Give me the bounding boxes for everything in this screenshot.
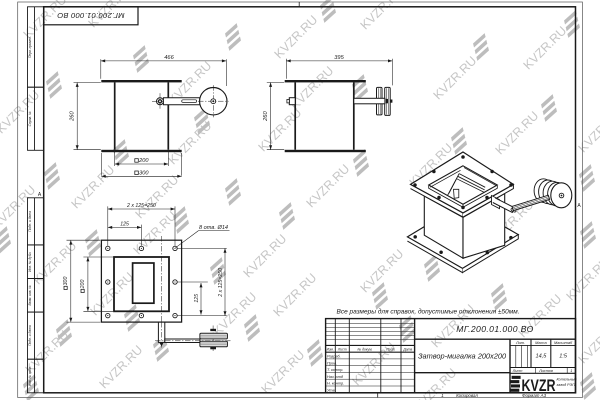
svg-text:Инв. № подл.: Инв. № подл. bbox=[28, 366, 32, 387]
svg-text:Н. контр.: Н. контр. bbox=[327, 382, 344, 386]
svg-text:Т. контр.: Т. контр. bbox=[327, 368, 343, 372]
svg-text:Разраб.: Разраб. bbox=[327, 355, 341, 359]
svg-text:Перв. примен.: Перв. примен. bbox=[28, 36, 32, 58]
svg-text:№ докум.: № докум. bbox=[358, 348, 373, 352]
svg-text:300: 300 bbox=[63, 277, 69, 286]
svg-text:125: 125 bbox=[194, 294, 200, 303]
svg-text:260: 260 bbox=[263, 111, 269, 122]
svg-text:Масштаб: Масштаб bbox=[554, 340, 573, 345]
svg-text:Лист: Лист bbox=[337, 348, 347, 352]
svg-text:300: 300 bbox=[139, 171, 149, 177]
svg-text:МГ.200.01.000 ВО: МГ.200.01.000 ВО bbox=[456, 324, 533, 334]
svg-text:Лит.: Лит. bbox=[515, 340, 525, 345]
svg-text:200: 200 bbox=[138, 158, 149, 164]
svg-text:Дата: Дата bbox=[402, 348, 412, 352]
svg-text:Изм.: Изм. bbox=[327, 348, 334, 352]
svg-text:Масса: Масса bbox=[535, 340, 547, 345]
svg-text:Инв. № дубл.: Инв. № дубл. bbox=[28, 251, 32, 271]
svg-text:завод РЭП: завод РЭП bbox=[556, 383, 576, 387]
svg-text:Утв.: Утв. bbox=[327, 388, 336, 392]
svg-text:Лист: Лист bbox=[512, 369, 523, 373]
svg-text:Взам. инв. №: Взам. инв. № bbox=[28, 285, 32, 306]
svg-text:Подп. и дата: Подп. и дата bbox=[28, 211, 32, 232]
svg-text:395: 395 bbox=[334, 55, 344, 61]
svg-text:1: 1 bbox=[570, 369, 572, 373]
svg-text:Листов: Листов bbox=[538, 369, 553, 373]
svg-text:Копировал: Копировал bbox=[456, 393, 478, 398]
svg-text:Затвор-мигалка 200х200: Затвор-мигалка 200х200 bbox=[418, 352, 507, 361]
svg-text:Справ. №: Справ. № bbox=[28, 111, 32, 126]
svg-text:Котельный: Котельный bbox=[557, 378, 577, 382]
svg-text:2 x 125=250: 2 x 125=250 bbox=[218, 268, 224, 298]
svg-text:Подп. и дата: Подп. и дата bbox=[28, 325, 32, 346]
svg-text:1:5: 1:5 bbox=[559, 354, 568, 360]
svg-text:Пров.: Пров. bbox=[327, 361, 337, 365]
svg-text:Подп.: Подп. bbox=[386, 348, 395, 352]
svg-text:Все размеры для справок, допус: Все размеры для справок, допустимые откл… bbox=[337, 308, 520, 316]
svg-text:260: 260 bbox=[70, 111, 76, 122]
svg-text:МГ.200.01.000 ВО: МГ.200.01.000 ВО bbox=[57, 11, 125, 20]
svg-text:125: 125 bbox=[120, 222, 129, 228]
svg-text:466: 466 bbox=[164, 55, 174, 61]
svg-text:Формат А3: Формат А3 bbox=[522, 393, 547, 398]
svg-text:2 x 125=250: 2 x 125=250 bbox=[126, 203, 156, 209]
svg-text:8 отв. Ø14: 8 отв. Ø14 bbox=[199, 225, 228, 231]
svg-text:14,5: 14,5 bbox=[535, 354, 547, 360]
svg-text:200: 200 bbox=[80, 280, 86, 290]
svg-text:Нач. отд: Нач. отд bbox=[327, 375, 343, 379]
